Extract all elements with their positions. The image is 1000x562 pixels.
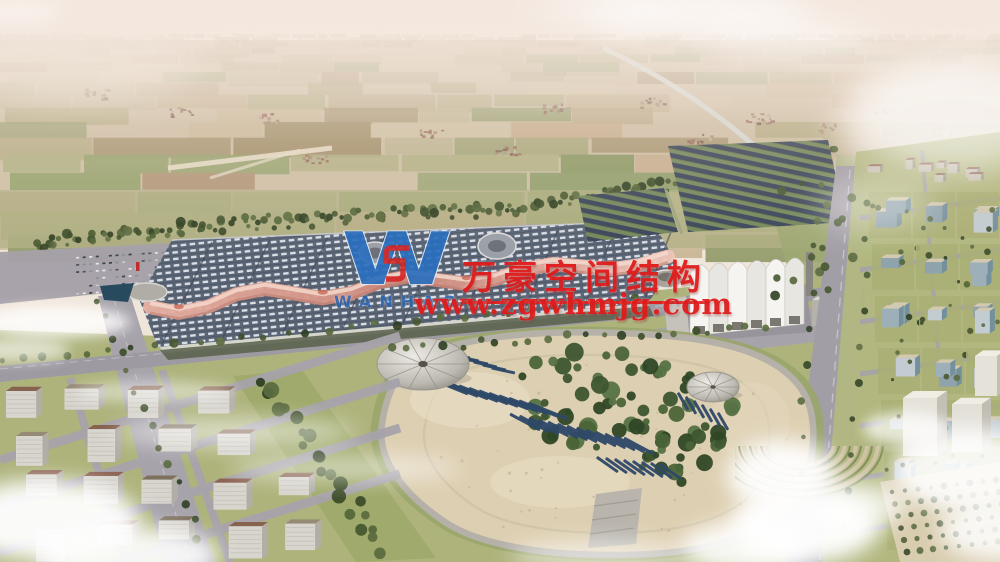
tree [670, 331, 677, 338]
station-entrance [789, 316, 800, 324]
tree [388, 343, 396, 351]
tree [177, 479, 182, 484]
tree [930, 546, 936, 552]
parked-car [96, 284, 99, 286]
gravel [674, 499, 677, 502]
tree [638, 333, 645, 340]
tree [773, 274, 780, 281]
tree [856, 344, 863, 351]
tree [260, 334, 266, 340]
parked-car [96, 291, 99, 293]
park-tree [616, 398, 626, 408]
tree [119, 349, 127, 357]
gravel [502, 526, 505, 529]
tree [512, 341, 518, 347]
tree [263, 382, 279, 398]
tree [155, 445, 162, 452]
tree [393, 321, 402, 330]
tree [803, 361, 811, 369]
tree [864, 272, 871, 279]
tree [801, 435, 806, 440]
tree [198, 340, 204, 346]
tree [917, 547, 924, 554]
tree [332, 489, 346, 503]
tree [617, 331, 626, 340]
city-building-front [970, 263, 988, 275]
tree [900, 339, 904, 343]
gravel [655, 428, 657, 430]
gravel [656, 412, 658, 414]
gravel [510, 392, 512, 394]
tower-front [975, 356, 997, 396]
residential-building-roof [141, 475, 177, 479]
parked-car [83, 292, 86, 294]
gravel [537, 392, 540, 395]
tree [192, 516, 199, 523]
ridge-crest [318, 290, 328, 295]
cloud [230, 455, 460, 481]
tree [238, 334, 244, 340]
tree [885, 468, 889, 472]
city-building-side [915, 355, 920, 377]
tree [898, 525, 904, 531]
tree [403, 345, 410, 352]
tree [821, 262, 830, 271]
gravel [540, 468, 543, 471]
aerial-rendering-image: W WANHAO 万豪空间结构 www.zgwhmjg.com [0, 0, 1000, 562]
park-tree [518, 372, 526, 380]
residential-building-roof [159, 516, 195, 520]
tree [891, 378, 894, 381]
park-tree [563, 374, 573, 384]
park-tree [629, 419, 645, 435]
pond [100, 283, 134, 302]
gravel [697, 415, 699, 417]
gravel [460, 459, 463, 462]
station-entrance [713, 324, 724, 332]
tree [326, 328, 334, 336]
city-building-side [904, 302, 909, 324]
tree [825, 286, 832, 293]
watermark-website-url: www.zgwhmjg.com [414, 287, 733, 321]
park-tree [701, 422, 710, 431]
parked-car [89, 285, 92, 287]
tree [770, 291, 780, 301]
ridge-crest [174, 304, 184, 309]
tree [169, 338, 178, 347]
park-tree [541, 399, 549, 407]
park-tree [565, 343, 584, 362]
tree [374, 548, 386, 560]
city-building-side [990, 307, 995, 333]
parked-car [109, 262, 112, 264]
park-tree [593, 402, 606, 415]
gravel [440, 456, 443, 459]
station-entrance [751, 320, 762, 328]
tree [84, 351, 91, 358]
tree [602, 332, 607, 337]
parked-car [128, 268, 131, 270]
park-tree [685, 441, 694, 450]
tree [563, 330, 571, 338]
tree [348, 324, 354, 330]
tree [967, 328, 973, 334]
park-tree [529, 356, 543, 370]
tree [355, 496, 366, 507]
park-tree [593, 444, 600, 451]
park-tree [591, 376, 609, 394]
park-tree [615, 346, 630, 361]
residential-building-side [36, 387, 42, 418]
city-building-front [896, 358, 915, 376]
city-building-front [928, 310, 942, 320]
tree [123, 368, 128, 373]
tree [914, 536, 919, 541]
gravel [661, 528, 663, 530]
tree [895, 350, 900, 355]
gravel [641, 435, 643, 437]
park-tree [627, 391, 636, 400]
parked-car [83, 271, 86, 273]
tree [371, 319, 378, 326]
park-tree [725, 402, 739, 416]
gravel [506, 380, 508, 382]
tree [981, 323, 985, 327]
tree [109, 336, 116, 343]
parked-car [102, 269, 105, 271]
cone-vent [710, 385, 715, 389]
gravel [528, 509, 531, 512]
residential-building-roof [229, 522, 268, 526]
tree [964, 281, 971, 288]
residential-building-roof [6, 387, 42, 391]
gravel [528, 428, 530, 430]
tree [163, 460, 171, 468]
parked-car [83, 263, 86, 265]
parked-car [96, 263, 99, 265]
city-building-front [925, 262, 942, 273]
gravel [540, 477, 542, 479]
tree [762, 325, 769, 332]
tree [904, 549, 911, 556]
gravel [555, 507, 557, 509]
city-building-side [899, 305, 904, 327]
tree [256, 378, 265, 387]
parked-car [76, 293, 79, 295]
station-vault [747, 261, 766, 330]
tree [954, 375, 961, 382]
tree [905, 500, 911, 506]
cloud [115, 418, 355, 446]
residential-building-front [88, 429, 116, 462]
park-tree [548, 357, 558, 367]
station-entrance [770, 318, 781, 326]
tree [726, 324, 733, 331]
tree [301, 329, 309, 337]
gravel [468, 486, 470, 488]
gravel [752, 392, 755, 395]
tree [420, 342, 425, 347]
park-tree [643, 418, 650, 425]
gravel [508, 472, 511, 475]
park-tree [625, 363, 638, 376]
tree [911, 524, 917, 530]
city-building-front [882, 309, 899, 328]
tree [140, 404, 148, 412]
tree [925, 523, 930, 528]
park-tree [696, 454, 713, 471]
tree [927, 534, 932, 539]
tree [524, 338, 531, 345]
park-tree [602, 351, 610, 359]
residential-building-front [16, 436, 42, 466]
parked-car [76, 271, 79, 273]
park-tree [612, 423, 627, 438]
residential-building-roof [26, 470, 63, 474]
park-tree [663, 392, 678, 407]
gravel [476, 425, 478, 427]
park-tree [642, 358, 658, 374]
tree [355, 524, 367, 536]
tree [790, 277, 798, 285]
cone-vent [418, 361, 427, 367]
tree [995, 320, 1000, 325]
residential-building-side [315, 519, 321, 550]
tree [957, 280, 960, 283]
gravel [683, 494, 685, 496]
gravel [733, 507, 735, 509]
park-tree [609, 398, 617, 406]
gravel [497, 450, 499, 452]
tree [934, 509, 939, 514]
city-building-front [975, 311, 990, 333]
tree [368, 532, 378, 542]
tree [850, 416, 856, 422]
park-tree [676, 453, 685, 462]
park-tree [656, 434, 671, 449]
tree [544, 336, 552, 344]
parked-car [102, 277, 105, 279]
park-tree [710, 425, 726, 441]
tree [906, 314, 912, 320]
gravel [520, 510, 522, 512]
tree [655, 332, 662, 339]
tree [152, 342, 159, 349]
residential-building-side [262, 522, 268, 558]
tree [901, 537, 907, 543]
gravel [667, 529, 670, 532]
tree [797, 397, 805, 405]
tree [908, 360, 913, 365]
tree [949, 304, 952, 307]
tree [861, 308, 868, 315]
park-tree [691, 429, 706, 444]
gravel [555, 517, 557, 519]
gravel [699, 447, 701, 449]
cloud [815, 483, 905, 527]
tree [921, 510, 928, 517]
gray-ramp [588, 488, 642, 548]
tree [182, 500, 190, 508]
tree [741, 323, 748, 330]
gravel [592, 496, 594, 498]
residential-building-roof [213, 479, 252, 483]
cloud [815, 180, 935, 230]
gravel [557, 462, 559, 464]
residential-building-roof [285, 519, 321, 523]
tree [920, 317, 925, 322]
tree [908, 512, 913, 517]
park-tree [575, 387, 590, 402]
tree [94, 299, 100, 305]
parked-car [96, 277, 99, 279]
red-sculpture [136, 262, 140, 271]
tree [128, 345, 134, 351]
tree [286, 330, 292, 336]
park-tree [573, 363, 581, 371]
parked-car [142, 260, 145, 262]
gravel [586, 364, 588, 366]
parked-car [115, 261, 118, 263]
tree [944, 545, 949, 550]
tree [848, 452, 854, 458]
tree [583, 331, 589, 337]
parked-car [122, 275, 125, 277]
tree [461, 345, 467, 351]
parked-car [128, 275, 131, 277]
cloud [863, 412, 947, 444]
parked-car [89, 292, 92, 294]
tree [491, 339, 499, 347]
cloud [705, 22, 875, 58]
parked-car [115, 276, 118, 278]
tree [944, 374, 950, 380]
tree [811, 290, 818, 297]
tree [280, 403, 290, 413]
tree [361, 511, 370, 520]
tree [345, 509, 356, 520]
station-vault [785, 258, 804, 326]
parked-car [102, 262, 105, 264]
residential-building-roof [84, 472, 124, 476]
parked-car [115, 269, 118, 271]
parked-car [122, 261, 125, 263]
tree [216, 337, 225, 346]
tree [478, 336, 485, 343]
tree [705, 331, 710, 336]
gravel [509, 490, 512, 493]
parked-car [89, 263, 92, 265]
cloud [75, 381, 235, 403]
parked-car [135, 275, 138, 277]
residential-building-front [229, 526, 262, 558]
gravel [525, 472, 528, 475]
tree [806, 326, 812, 332]
park-tree [669, 406, 685, 422]
parked-car [96, 270, 99, 272]
park-tree [660, 360, 672, 372]
residential-building-front [141, 480, 171, 504]
gravel [692, 472, 694, 474]
parked-car [89, 270, 92, 272]
tree [855, 379, 863, 387]
tree [105, 347, 111, 353]
parked-car [148, 274, 151, 276]
tree [692, 327, 700, 335]
park-tree [638, 405, 650, 417]
parked-car [109, 269, 112, 271]
parked-car [76, 264, 79, 266]
tree [438, 341, 447, 350]
residential-building-side [42, 432, 48, 466]
residential-building-side [172, 475, 178, 503]
residential-building-side [247, 479, 253, 510]
park-tree [658, 404, 668, 414]
